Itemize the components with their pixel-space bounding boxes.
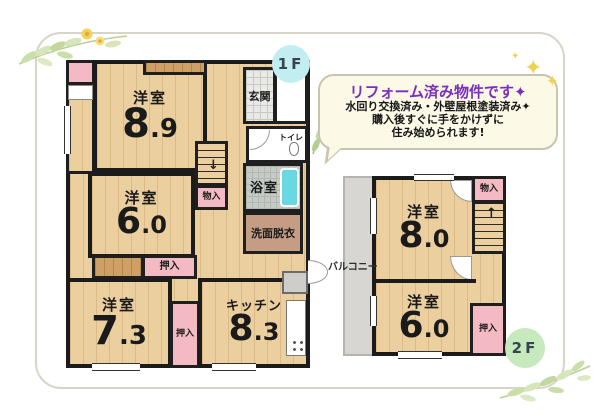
stairs-down-arrow-icon: ↓: [208, 158, 219, 173]
window: [398, 351, 442, 359]
floor1-curtain: [68, 85, 93, 100]
bath-room: 浴室: [243, 163, 303, 212]
storage-1f: 物入: [195, 185, 228, 210]
sparkle-icon: ✦: [511, 52, 519, 62]
room-yoshitsu-7-3: 洋室 7.3: [66, 278, 172, 368]
room-size: 8.0: [399, 220, 450, 252]
floor1-top-closet: [143, 60, 207, 75]
window: [370, 296, 377, 326]
room-size: 8.9: [122, 106, 178, 142]
closet-2f: 押入: [470, 303, 506, 356]
closet-label: 押入: [479, 325, 497, 334]
balcony-label: バルコニー: [328, 258, 386, 273]
toilet-icon: [289, 142, 299, 156]
leaf-branch-topleft-icon: [15, 24, 133, 70]
callout-title: リフォーム済み物件です✦: [349, 84, 526, 101]
toilet-room: トイレ: [246, 126, 308, 163]
window: [92, 363, 140, 371]
kitchen-counter: [286, 300, 306, 356]
stairs-2f: ↑: [472, 201, 506, 254]
window: [370, 198, 377, 234]
floor1-dark-closet: [92, 255, 144, 279]
room-size: 6.0: [399, 310, 450, 342]
closet-vertical-1f: 押入: [170, 301, 200, 368]
washroom-label: 洗面脱衣: [251, 225, 295, 241]
floor1-badge: 1F: [272, 45, 310, 83]
genkan-label: 玄関: [249, 88, 271, 104]
room-yoshitsu-6-0-1f: 洋室 6.0: [88, 172, 195, 258]
stairs-up-arrow-icon: ↑: [486, 206, 497, 221]
bathtub-icon: [280, 168, 299, 207]
room-size: 8.3: [229, 313, 280, 345]
room-size: 7.3: [91, 313, 147, 349]
washroom-area: 洗面脱衣: [243, 212, 303, 254]
floor2-badge: 2F: [505, 328, 545, 368]
stove-icon: [290, 338, 303, 351]
storage-1f-label: 物入: [202, 193, 220, 202]
room-yoshitsu-6-0-2f: 洋室 6.0: [376, 285, 472, 353]
callout-bubble: リフォーム済み物件です✦ 水回り交換済み・外壁屋根塗装済み✦ 購入後すぐに手をか…: [318, 74, 558, 150]
storage-2f: 物入: [472, 176, 506, 203]
kitchen-gray-unit: [282, 271, 308, 294]
floor2-divider-wall: [372, 279, 476, 283]
bubble-tail: [328, 143, 344, 162]
window: [414, 174, 454, 181]
sparkle-icon: ✦: [546, 74, 559, 89]
closet-under-6-0: 押入: [142, 255, 197, 279]
floorplan-flyer: 洋室 8.9 玄関 トイレ 浴室 洗面脱衣 ↓ 物入 洋室 6.0 押入 洋室 …: [0, 0, 600, 419]
genkan-area: 玄関: [243, 67, 276, 124]
bath-label: 浴室: [250, 182, 278, 195]
closet-label: 押入: [176, 330, 194, 339]
room-yoshitsu-8-9: 洋室 8.9: [93, 60, 207, 172]
window: [64, 106, 71, 154]
stairs-1f: ↓: [195, 141, 228, 186]
callout-line-3: 住み始められます!: [391, 127, 484, 140]
window: [212, 363, 256, 371]
room-size: 6.0: [116, 206, 167, 238]
closet-label: 押入: [160, 262, 180, 272]
toilet-label: トイレ: [279, 132, 303, 143]
storage-2f-label: 物入: [480, 185, 498, 194]
sparkle-icon: ✦: [524, 58, 542, 80]
toilet-door-arc: [250, 130, 270, 150]
